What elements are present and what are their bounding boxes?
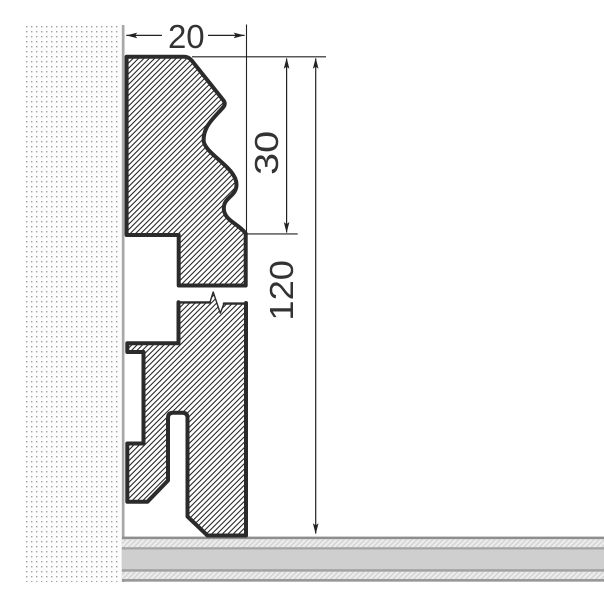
svg-text:120: 120 bbox=[264, 260, 300, 321]
svg-text:30: 30 bbox=[248, 131, 285, 175]
svg-text:20: 20 bbox=[168, 18, 205, 55]
